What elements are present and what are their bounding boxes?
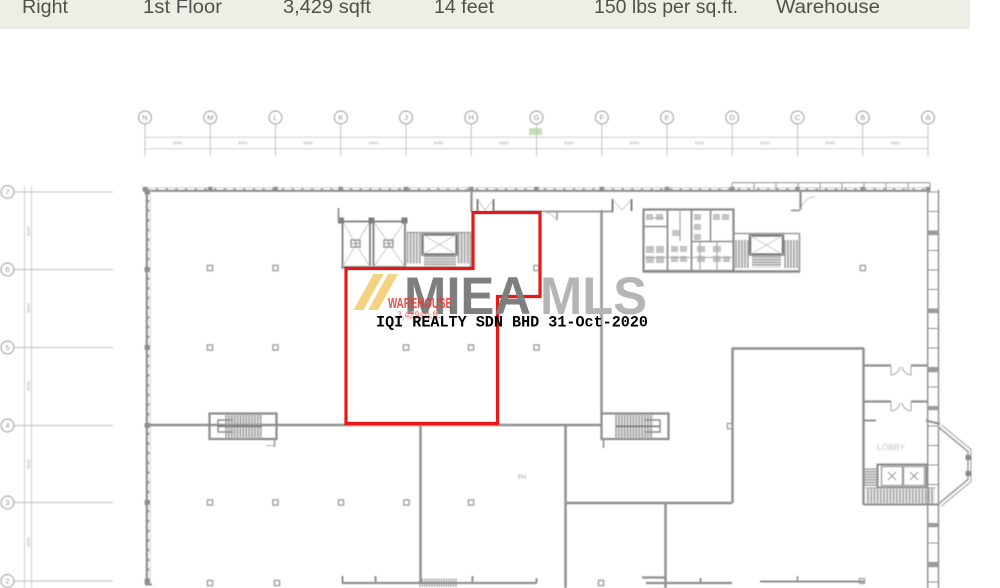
svg-text:8000: 8000 <box>26 303 31 313</box>
svg-text:8000: 8000 <box>26 226 31 236</box>
svg-text:Right: Right <box>22 0 69 18</box>
svg-text:3: 3 <box>5 498 9 507</box>
svg-text:B: B <box>860 113 865 122</box>
svg-text:8000: 8000 <box>303 141 313 146</box>
svg-text:E: E <box>664 113 669 122</box>
svg-text:LOBBY: LOBBY <box>877 443 906 452</box>
svg-text:4: 4 <box>5 421 9 430</box>
svg-text:FH: FH <box>518 475 526 481</box>
svg-text:8000: 8000 <box>630 141 640 146</box>
svg-text:1st Floor: 1st Floor <box>143 0 223 18</box>
svg-text:8000: 8000 <box>434 141 444 146</box>
svg-text:M: M <box>207 113 213 122</box>
svg-text:3,429 sqft: 3,429 sqft <box>283 0 372 18</box>
svg-text:G: G <box>534 113 540 122</box>
svg-text:8000: 8000 <box>695 141 705 146</box>
svg-text:6: 6 <box>5 265 9 274</box>
svg-text:8000: 8000 <box>825 141 835 146</box>
svg-text:8000: 8000 <box>760 141 770 146</box>
svg-text:C: C <box>795 113 801 122</box>
svg-text:5: 5 <box>5 343 9 352</box>
svg-text:150 lbs per sq.ft.: 150 lbs per sq.ft. <box>594 0 738 18</box>
svg-text:8000: 8000 <box>26 537 31 547</box>
svg-text:H: H <box>468 113 473 122</box>
svg-text:D: D <box>729 113 735 122</box>
svg-text:8000: 8000 <box>564 141 574 146</box>
svg-text:K: K <box>338 113 343 122</box>
svg-text:14 feet: 14 feet <box>434 0 495 18</box>
svg-text:8000: 8000 <box>499 141 509 146</box>
svg-text:F: F <box>600 113 605 122</box>
svg-text:8000: 8000 <box>26 459 31 469</box>
svg-text:N: N <box>142 113 147 122</box>
svg-text:8000: 8000 <box>238 141 248 146</box>
svg-text:8000: 8000 <box>26 381 31 391</box>
svg-text:J: J <box>404 113 408 122</box>
svg-text:8000: 8000 <box>173 141 183 146</box>
svg-text:2: 2 <box>5 577 9 586</box>
svg-text:L: L <box>273 113 277 122</box>
svg-text:7: 7 <box>5 188 9 197</box>
svg-text:A: A <box>925 113 930 122</box>
svg-text:8000: 8000 <box>369 141 379 146</box>
svg-text:8000: 8000 <box>891 141 901 146</box>
svg-text:IQI REALTY SDN BHD 31-Oct-2020: IQI REALTY SDN BHD 31-Oct-2020 <box>376 314 648 332</box>
svg-text:Warehouse: Warehouse <box>776 0 880 18</box>
